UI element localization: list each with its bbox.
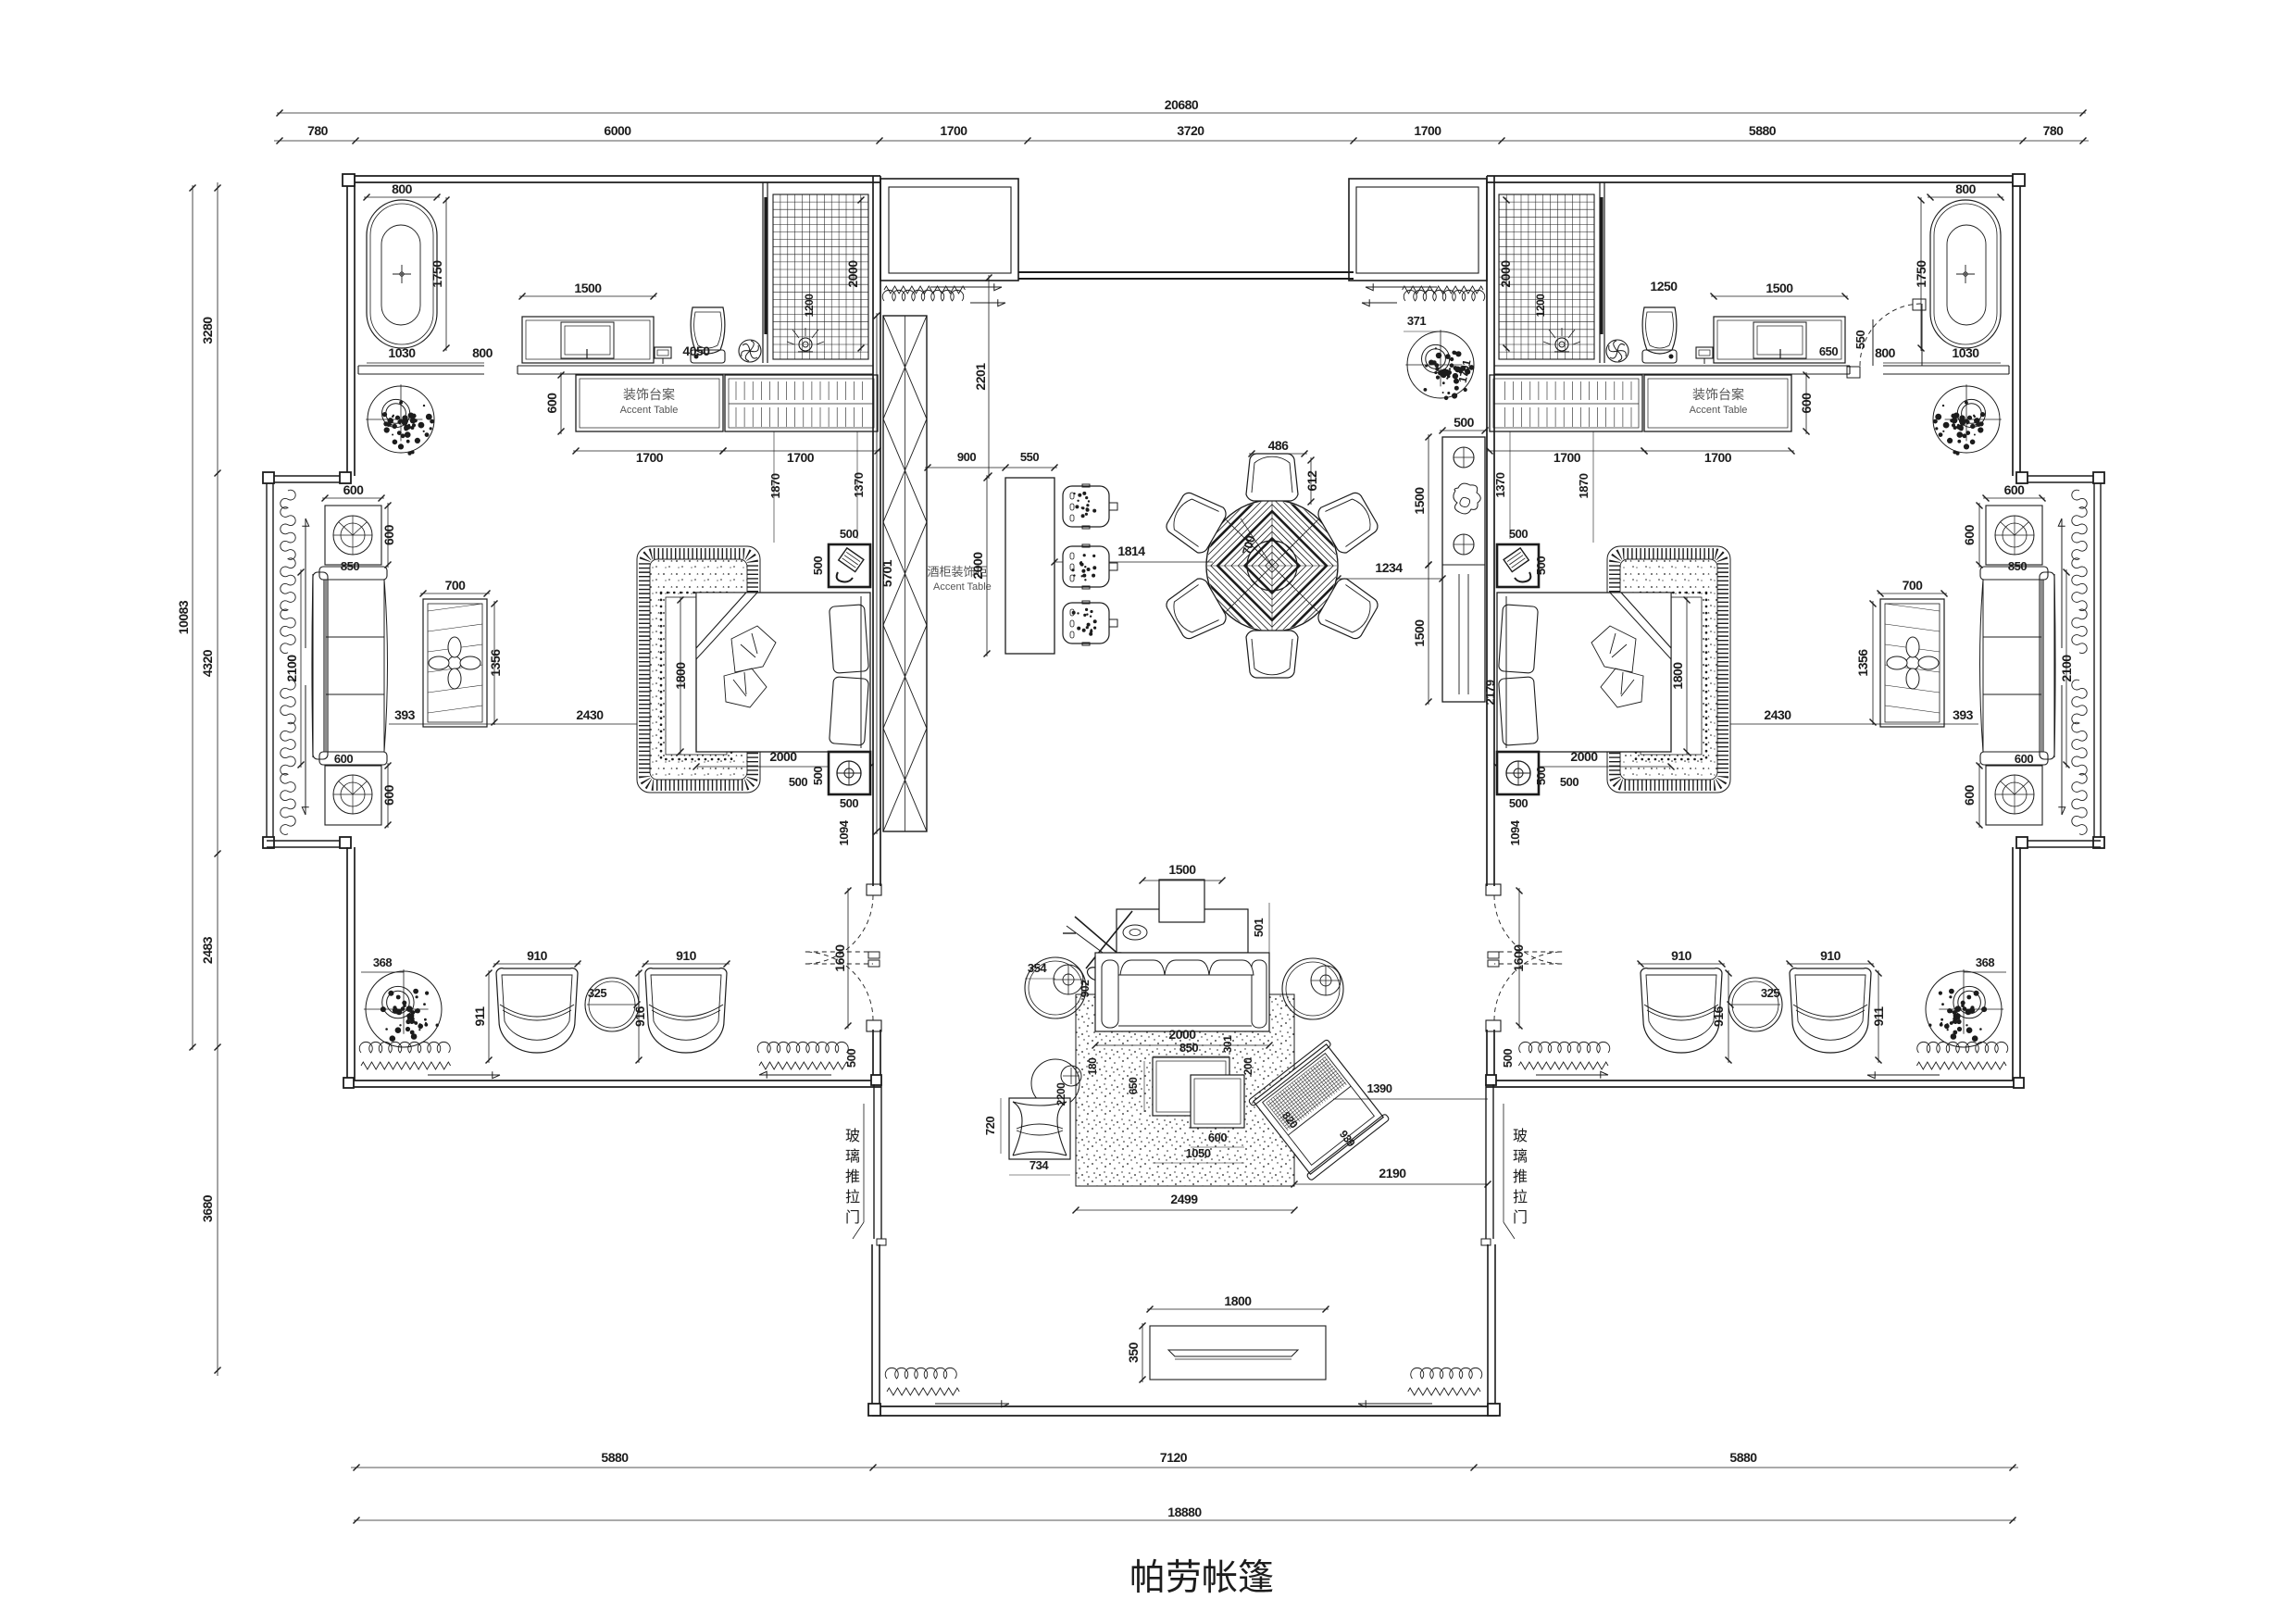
svg-text:1200: 1200 — [803, 294, 816, 318]
svg-text:推: 推 — [1513, 1168, 1528, 1185]
svg-text:2000: 2000 — [1570, 749, 1598, 764]
svg-text:600: 600 — [2004, 482, 2026, 497]
svg-text:2430: 2430 — [576, 707, 604, 722]
svg-text:500: 500 — [789, 775, 807, 789]
svg-text:1870: 1870 — [1577, 473, 1591, 498]
svg-text:1500: 1500 — [1168, 862, 1196, 877]
svg-text:4320: 4320 — [200, 649, 215, 677]
svg-text:2430: 2430 — [1764, 707, 1791, 722]
svg-text:500: 500 — [1534, 556, 1548, 575]
svg-text:600: 600 — [381, 524, 396, 545]
svg-text:486: 486 — [1268, 438, 1290, 453]
svg-text:600: 600 — [1799, 393, 1814, 414]
svg-text:2000: 2000 — [769, 749, 797, 764]
svg-text:推: 推 — [845, 1168, 860, 1185]
svg-text:1500: 1500 — [574, 281, 602, 295]
svg-text:500: 500 — [1534, 767, 1548, 785]
svg-text:1200: 1200 — [1534, 294, 1547, 318]
svg-text:门: 门 — [1513, 1209, 1528, 1226]
svg-text:1700: 1700 — [940, 123, 967, 138]
svg-text:850: 850 — [341, 559, 359, 573]
svg-text:1700: 1700 — [787, 450, 815, 465]
svg-text:4050: 4050 — [682, 344, 710, 358]
svg-text:734: 734 — [1029, 1158, 1049, 1172]
svg-text:5880: 5880 — [1729, 1450, 1757, 1465]
svg-text:910: 910 — [676, 948, 697, 963]
svg-text:7120: 7120 — [1160, 1450, 1188, 1465]
svg-text:500: 500 — [1454, 415, 1475, 430]
svg-text:1030: 1030 — [1952, 345, 1979, 360]
svg-text:720: 720 — [983, 1117, 997, 1135]
svg-text:600: 600 — [381, 784, 396, 806]
svg-text:1370: 1370 — [852, 472, 866, 497]
svg-text:1700: 1700 — [1414, 123, 1441, 138]
svg-text:800: 800 — [1875, 345, 1896, 360]
svg-text:700: 700 — [1903, 578, 1924, 593]
svg-text:1800: 1800 — [1224, 1293, 1252, 1308]
svg-text:650: 650 — [1819, 344, 1838, 358]
svg-text:368: 368 — [373, 956, 392, 969]
svg-text:600: 600 — [1962, 524, 1977, 545]
svg-text:500: 500 — [811, 767, 825, 785]
svg-text:500: 500 — [811, 556, 825, 575]
svg-text:902: 902 — [1079, 980, 1092, 997]
svg-text:5880: 5880 — [1749, 123, 1777, 138]
svg-text:2100: 2100 — [2059, 655, 2074, 682]
svg-text:500: 500 — [1509, 527, 1528, 541]
svg-text:1500: 1500 — [1412, 487, 1427, 515]
svg-text:5701: 5701 — [880, 559, 894, 587]
svg-text:1870: 1870 — [768, 473, 782, 498]
svg-text:800: 800 — [472, 345, 493, 360]
svg-text:368: 368 — [1976, 956, 1994, 969]
svg-text:1700: 1700 — [1554, 450, 1581, 465]
svg-text:916: 916 — [632, 1006, 647, 1027]
svg-text:3720: 3720 — [1177, 123, 1204, 138]
svg-text:325: 325 — [588, 986, 606, 1000]
svg-text:1500: 1500 — [1412, 619, 1427, 647]
svg-text:1030: 1030 — [388, 345, 416, 360]
svg-text:600: 600 — [1962, 784, 1977, 806]
svg-text:2201: 2201 — [973, 363, 988, 391]
svg-text:5880: 5880 — [601, 1450, 629, 1465]
svg-text:500: 500 — [1560, 775, 1578, 789]
svg-text:玻: 玻 — [845, 1128, 860, 1144]
svg-text:2000: 2000 — [1168, 1027, 1196, 1042]
svg-text:180: 180 — [1086, 1057, 1099, 1075]
svg-text:1370: 1370 — [1493, 472, 1507, 497]
svg-text:500: 500 — [1501, 1049, 1515, 1068]
svg-text:916: 916 — [1711, 1006, 1726, 1027]
svg-text:3680: 3680 — [200, 1194, 215, 1222]
svg-text:6000: 6000 — [604, 123, 631, 138]
svg-text:800: 800 — [1955, 181, 1977, 196]
svg-text:393: 393 — [394, 707, 416, 722]
svg-text:2000: 2000 — [1498, 260, 1513, 288]
svg-text:1600: 1600 — [1511, 944, 1526, 972]
svg-text:600: 600 — [334, 752, 353, 766]
svg-text:1234: 1234 — [1375, 560, 1403, 575]
svg-text:拉: 拉 — [1513, 1189, 1528, 1206]
svg-text:780: 780 — [2043, 123, 2065, 138]
svg-text:600: 600 — [1208, 1131, 1227, 1144]
svg-text:325: 325 — [1761, 986, 1779, 1000]
svg-text:200: 200 — [1242, 1057, 1254, 1075]
svg-text:2483: 2483 — [200, 936, 215, 964]
svg-text:650: 650 — [1127, 1077, 1140, 1094]
svg-text:850: 850 — [1179, 1041, 1198, 1055]
svg-text:910: 910 — [1671, 948, 1692, 963]
svg-text:玻: 玻 — [1513, 1128, 1528, 1144]
svg-text:1094: 1094 — [1508, 819, 1522, 845]
svg-text:1356: 1356 — [488, 649, 503, 677]
svg-text:500: 500 — [840, 796, 858, 810]
svg-text:354: 354 — [1028, 961, 1047, 975]
svg-text:3280: 3280 — [200, 317, 215, 344]
svg-text:1094: 1094 — [837, 819, 851, 845]
svg-text:600: 600 — [544, 393, 559, 414]
svg-text:500: 500 — [840, 527, 858, 541]
svg-text:910: 910 — [527, 948, 548, 963]
svg-text:780: 780 — [307, 123, 329, 138]
svg-text:600: 600 — [2015, 752, 2033, 766]
svg-text:装饰台案: 装饰台案 — [1692, 387, 1744, 402]
svg-text:393: 393 — [1953, 707, 1974, 722]
svg-text:500: 500 — [844, 1049, 858, 1068]
svg-text:1050: 1050 — [1186, 1146, 1211, 1160]
svg-text:Accent Table: Accent Table — [1690, 405, 1748, 416]
svg-text:1600: 1600 — [832, 944, 847, 972]
svg-text:911: 911 — [1871, 1006, 1886, 1027]
svg-text:2190: 2190 — [1379, 1166, 1406, 1181]
svg-text:700: 700 — [445, 578, 467, 593]
svg-text:900: 900 — [957, 450, 976, 464]
svg-text:1800: 1800 — [1670, 662, 1685, 690]
svg-text:371: 371 — [1407, 314, 1426, 328]
svg-text:2000: 2000 — [845, 260, 860, 288]
svg-text:910: 910 — [1820, 948, 1841, 963]
svg-text:800: 800 — [392, 181, 413, 196]
svg-text:帕劳帐篷: 帕劳帐篷 — [1129, 1558, 1274, 1598]
svg-text:1250: 1250 — [1650, 279, 1678, 294]
svg-text:501: 501 — [1252, 918, 1266, 937]
svg-text:18880: 18880 — [1167, 1505, 1202, 1519]
svg-text:600: 600 — [343, 482, 365, 497]
svg-text:2499: 2499 — [1170, 1192, 1198, 1206]
svg-text:2200: 2200 — [1054, 1082, 1067, 1106]
svg-text:2100: 2100 — [284, 655, 299, 682]
svg-text:1356: 1356 — [1855, 649, 1870, 677]
svg-text:20680: 20680 — [1165, 97, 1199, 112]
svg-text:璃: 璃 — [845, 1148, 860, 1165]
svg-text:拉: 拉 — [845, 1189, 860, 1206]
svg-text:1750: 1750 — [1914, 260, 1928, 288]
svg-text:301: 301 — [1221, 1035, 1234, 1053]
svg-text:1750: 1750 — [430, 260, 444, 288]
svg-text:装饰台案: 装饰台案 — [623, 387, 675, 402]
svg-text:1700: 1700 — [1704, 450, 1732, 465]
svg-text:2000: 2000 — [970, 552, 985, 580]
svg-text:1800: 1800 — [673, 662, 688, 690]
svg-text:1500: 1500 — [1766, 281, 1793, 295]
svg-text:Accent Table: Accent Table — [620, 405, 679, 416]
svg-text:850: 850 — [2008, 559, 2027, 573]
svg-text:1814: 1814 — [1117, 543, 1145, 558]
svg-text:门: 门 — [845, 1209, 860, 1226]
svg-text:10083: 10083 — [176, 600, 191, 634]
svg-text:550: 550 — [1020, 450, 1039, 464]
svg-text:350: 350 — [1126, 1342, 1141, 1363]
svg-text:1390: 1390 — [1367, 1081, 1392, 1095]
svg-text:Accent Table: Accent Table — [933, 581, 992, 593]
svg-text:1700: 1700 — [636, 450, 664, 465]
svg-text:612: 612 — [1304, 470, 1319, 492]
svg-text:2179: 2179 — [1483, 680, 1497, 705]
svg-text:911: 911 — [472, 1006, 487, 1027]
svg-text:500: 500 — [1509, 796, 1528, 810]
svg-text:璃: 璃 — [1513, 1148, 1528, 1165]
